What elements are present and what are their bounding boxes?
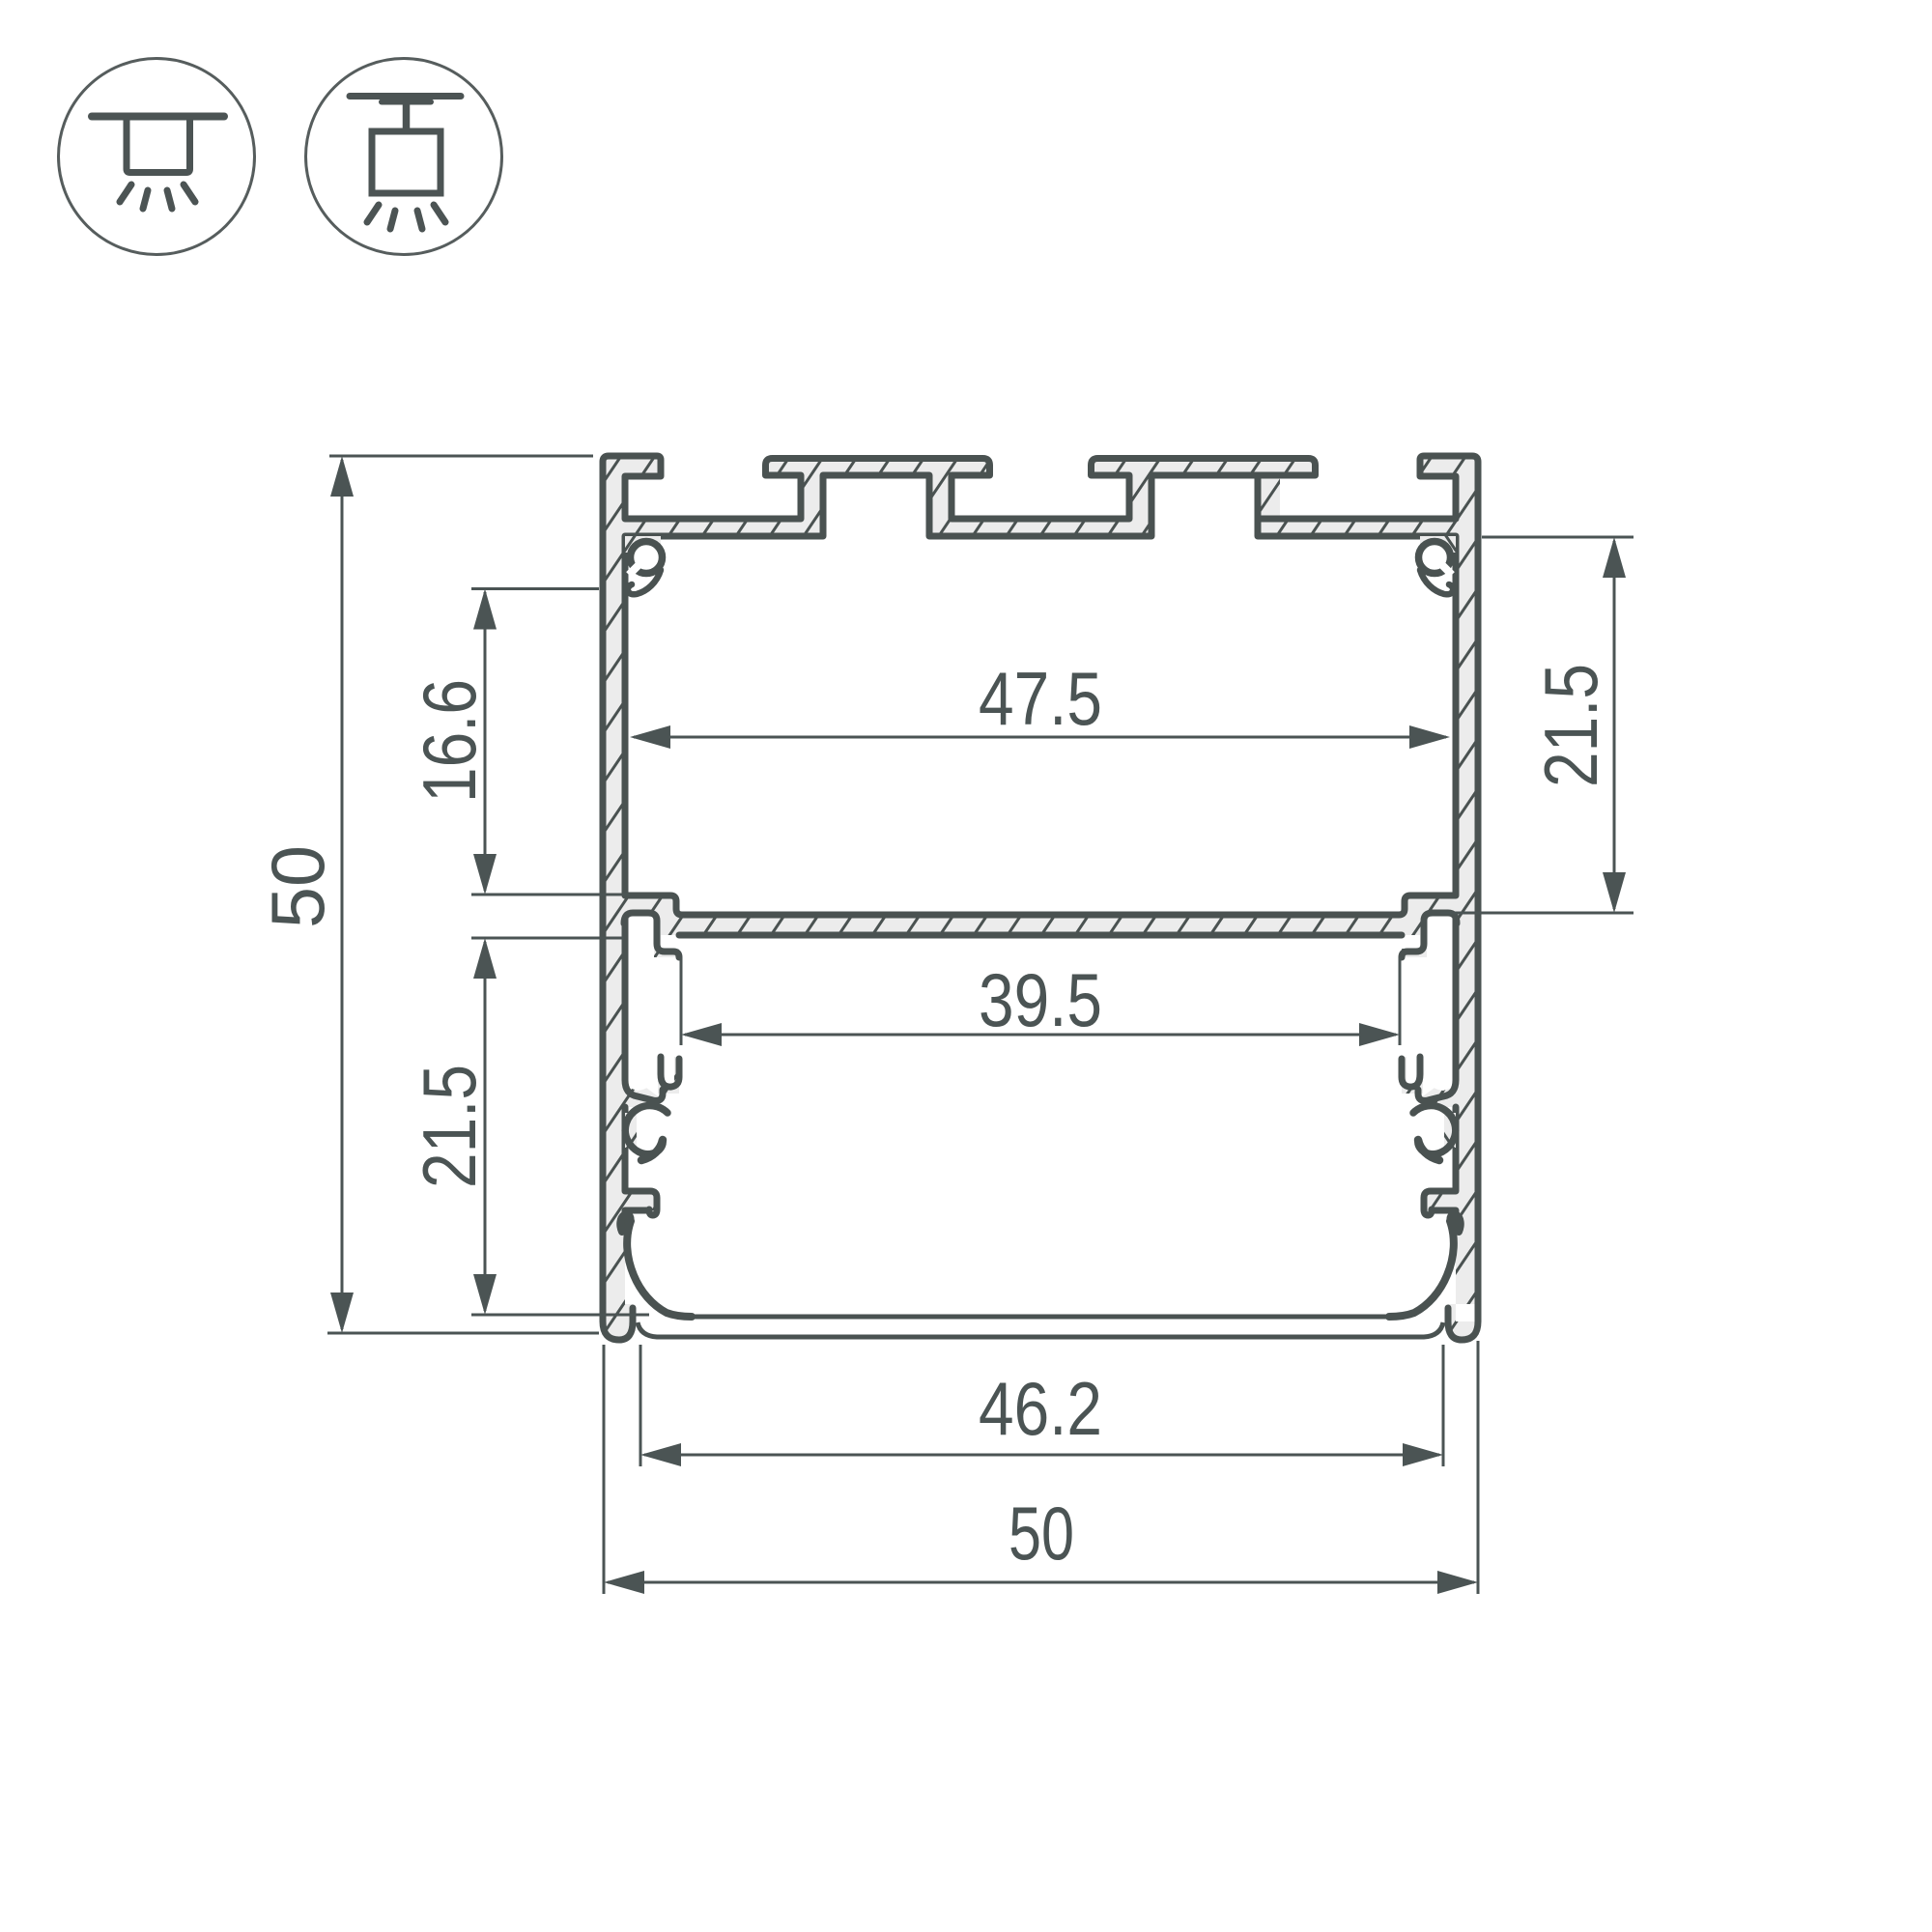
svg-text:21.5: 21.5 [1528,664,1613,787]
svg-text:47.5: 47.5 [979,656,1102,741]
svg-text:46.2: 46.2 [979,1366,1102,1451]
svg-text:50: 50 [255,845,340,928]
svg-text:21.5: 21.5 [407,1065,492,1188]
svg-text:16.6: 16.6 [407,679,492,803]
svg-text:39.5: 39.5 [979,957,1102,1042]
svg-text:50: 50 [1009,1491,1074,1576]
